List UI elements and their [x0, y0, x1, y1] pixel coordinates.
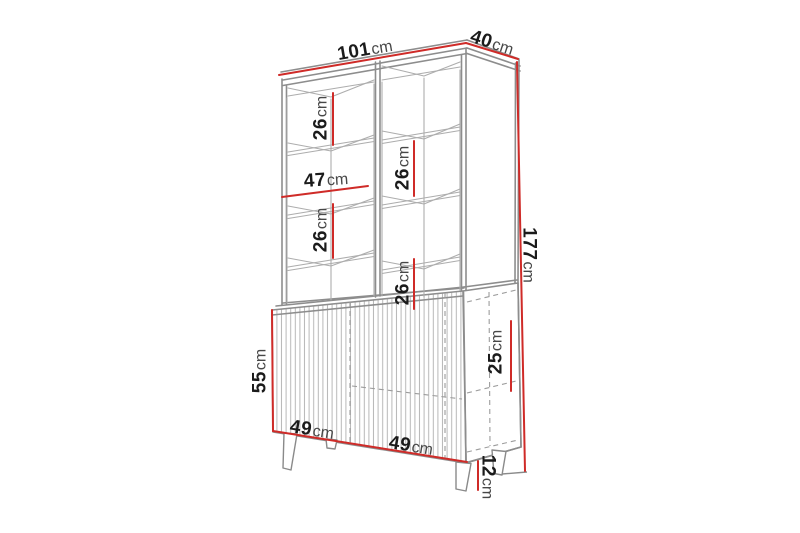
furniture-dimension-diagram: 101cm 40cm 177cm 26cm 47cm 26cm 26cm 26c…	[0, 0, 800, 533]
dim-value: 47	[303, 170, 327, 192]
dim-value: 26	[311, 118, 332, 140]
dim-label-shelf-left-top: 26cm	[312, 96, 331, 140]
dim-label-base-right-inner: 25cm	[487, 330, 506, 374]
dim-line-base-height	[272, 310, 273, 431]
dim-label-left-inner-width: 47cm	[303, 169, 349, 191]
dim-label-base-height: 55cm	[251, 349, 270, 393]
dim-label-shelf-left-mid: 26cm	[312, 208, 331, 252]
dim-value: 49	[288, 416, 313, 440]
dim-value: 49	[387, 432, 412, 456]
dim-unit: cm	[520, 261, 537, 282]
dim-unit: cm	[314, 208, 331, 229]
leg-front-left	[283, 433, 297, 470]
dim-value: 26	[311, 230, 332, 252]
dim-label-shelf-right-upper: 26cm	[394, 146, 413, 190]
dim-unit: cm	[396, 146, 413, 167]
dim-value: 55	[250, 371, 271, 393]
dim-value: 26	[393, 168, 414, 190]
dim-value: 25	[486, 352, 507, 374]
dim-unit: cm	[326, 171, 348, 189]
dim-unit: cm	[479, 478, 496, 499]
dim-unit: cm	[489, 330, 506, 351]
dim-unit: cm	[370, 38, 394, 58]
dim-unit: cm	[311, 423, 335, 443]
dim-unit: cm	[314, 96, 331, 117]
dim-value: 12	[478, 455, 499, 477]
dim-label-leg-height: 12cm	[479, 455, 498, 499]
dim-unit: cm	[396, 261, 413, 282]
leg-front-right	[456, 462, 471, 491]
dim-label-height: 177cm	[520, 227, 539, 283]
dim-unit: cm	[410, 439, 434, 459]
dim-label-shelf-right-lower: 26cm	[394, 261, 413, 305]
dim-value: 26	[393, 283, 414, 305]
dim-value: 177	[519, 227, 540, 260]
dim-unit: cm	[253, 349, 270, 370]
